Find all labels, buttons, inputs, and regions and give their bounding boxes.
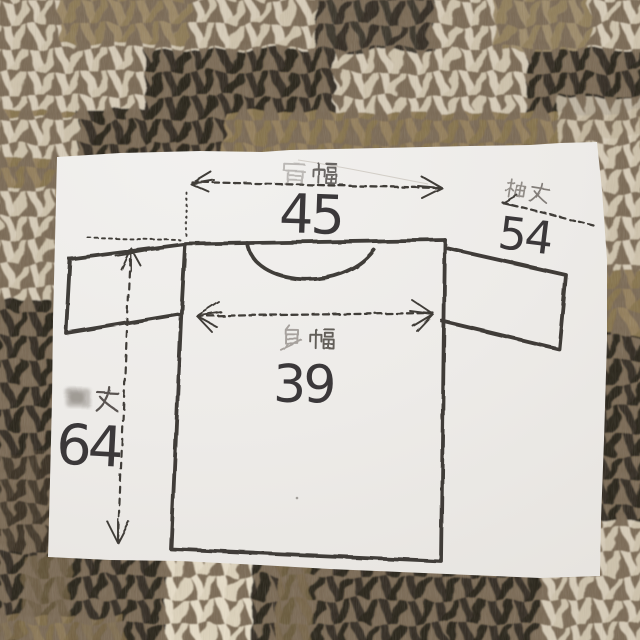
sleeve-length-value: 54: [495, 206, 555, 265]
body-width-value: 39: [273, 354, 334, 415]
photo-scene: 45 54 39 64 肩幅 袖丈 身幅 着丈: [0, 0, 640, 640]
body-width-arrow: [197, 300, 433, 332]
sleeve-length-label-stamp: [505, 178, 550, 203]
garment-length-value: 64: [55, 412, 123, 480]
neckline-curve: [247, 243, 374, 279]
garment-length-label-stamp: [66, 387, 119, 412]
garment-length-arrow: [88, 238, 180, 543]
left-sleeve: [66, 259, 181, 333]
ink-speck: [296, 497, 299, 500]
body-width-label-stamp: [281, 325, 334, 351]
shoulder-width-value: 45: [278, 182, 343, 247]
size-diagram: 45 54 39 64: [0, 0, 640, 640]
